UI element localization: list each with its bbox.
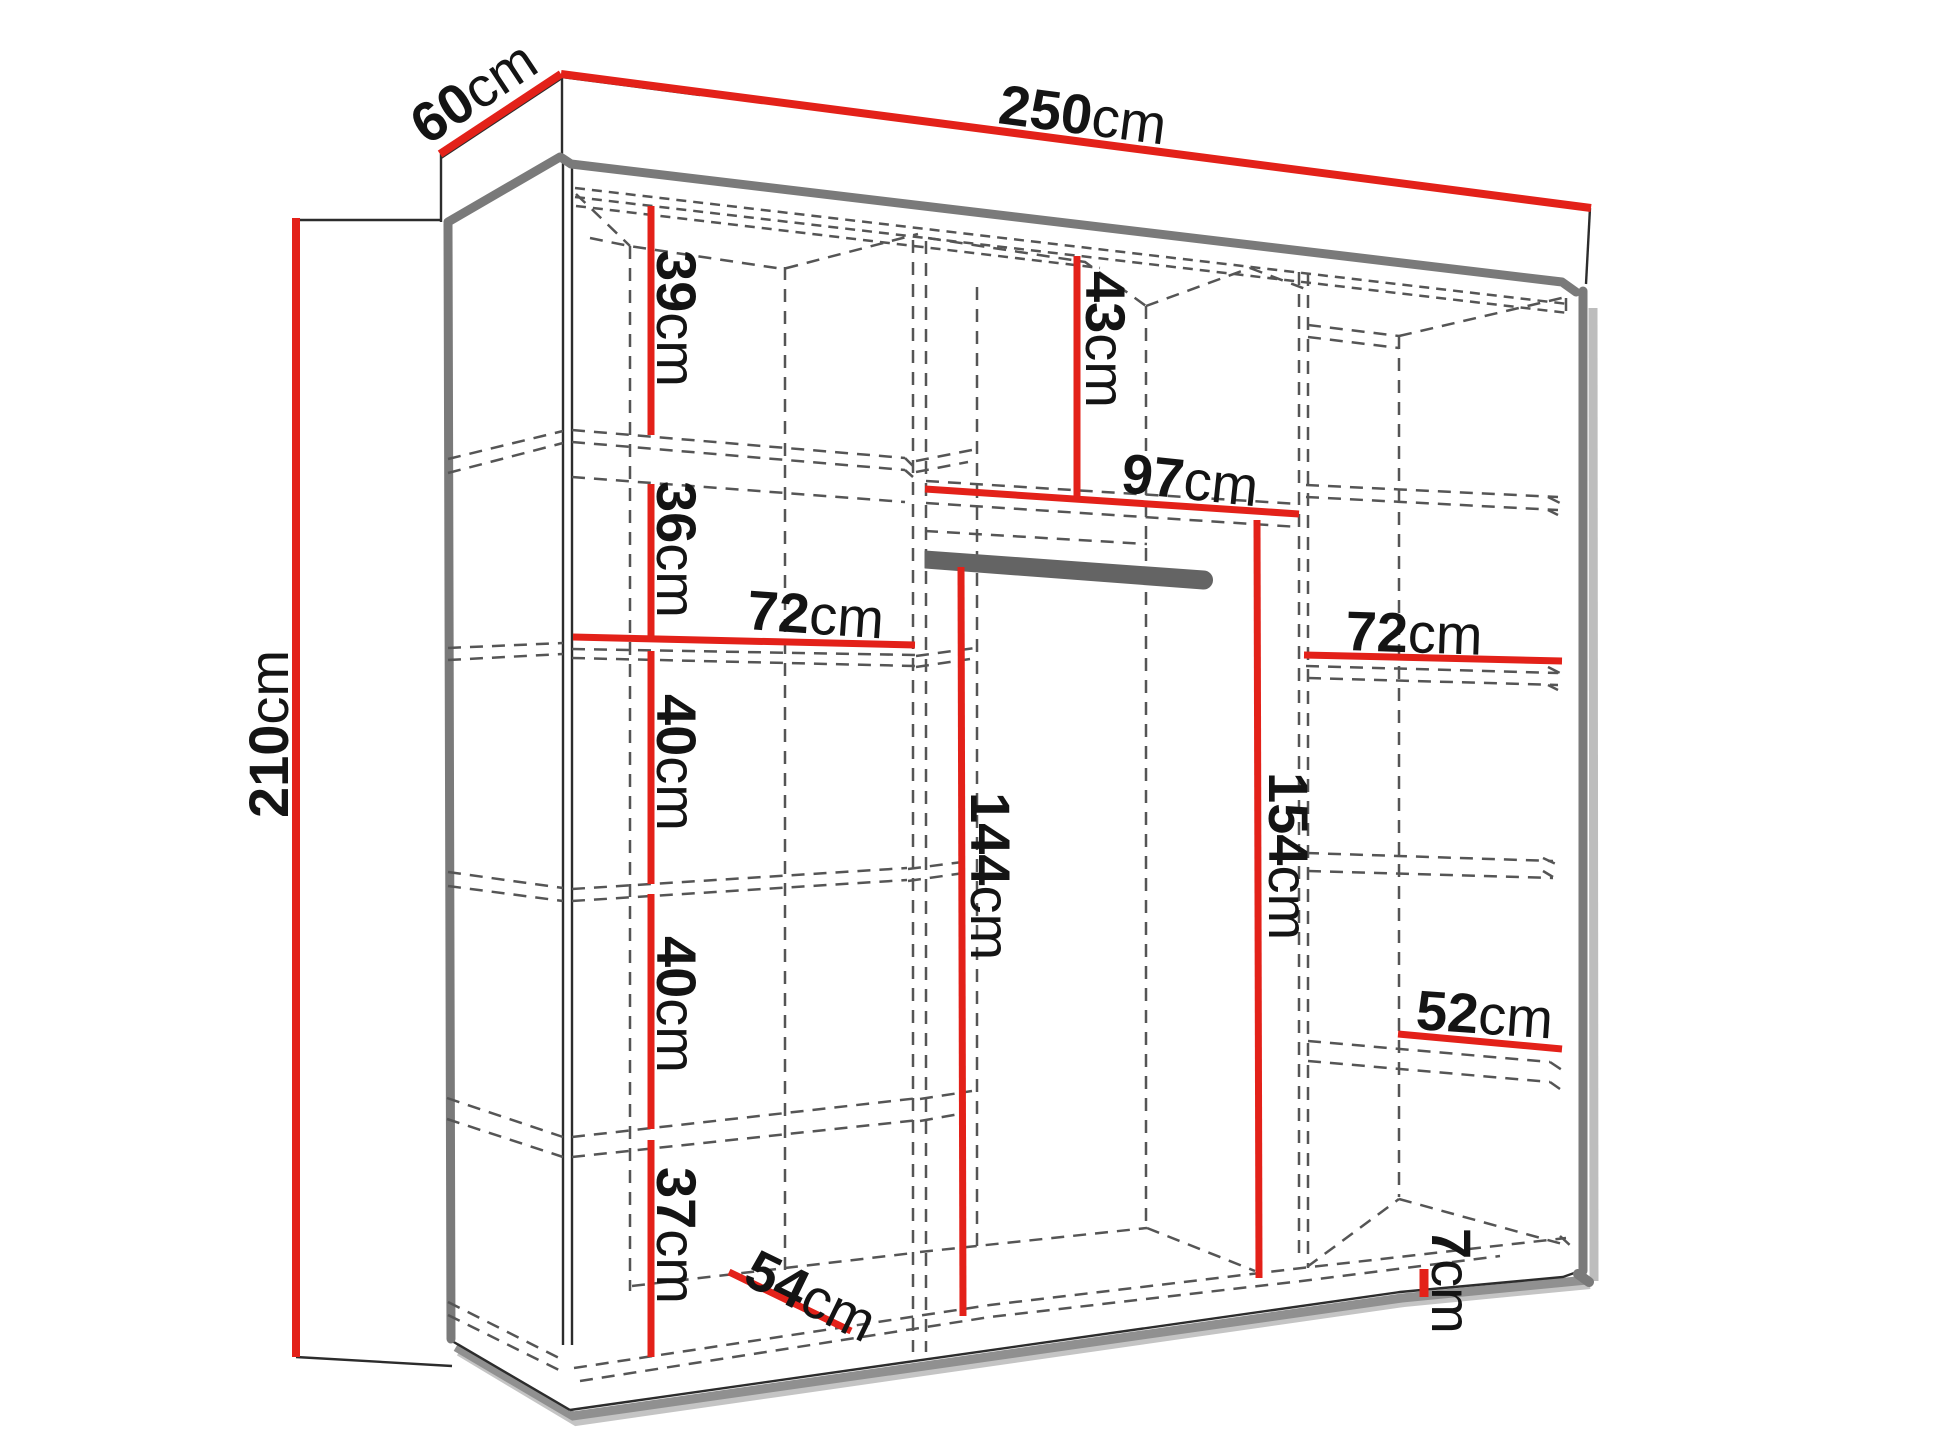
svg-text:43cm: 43cm (1074, 271, 1137, 408)
svg-text:36cm: 36cm (645, 481, 708, 618)
svg-text:37cm: 37cm (645, 1167, 708, 1304)
svg-text:72cm: 72cm (1345, 599, 1484, 667)
svg-text:144cm: 144cm (959, 792, 1022, 960)
svg-text:7cm: 7cm (1420, 1228, 1483, 1334)
svg-text:40cm: 40cm (645, 694, 708, 831)
svg-text:72cm: 72cm (745, 578, 886, 650)
svg-text:39cm: 39cm (645, 250, 708, 387)
svg-text:52cm: 52cm (1414, 978, 1555, 1050)
svg-text:210cm: 210cm (237, 650, 300, 818)
svg-text:40cm: 40cm (645, 936, 708, 1073)
svg-text:154cm: 154cm (1257, 772, 1320, 940)
